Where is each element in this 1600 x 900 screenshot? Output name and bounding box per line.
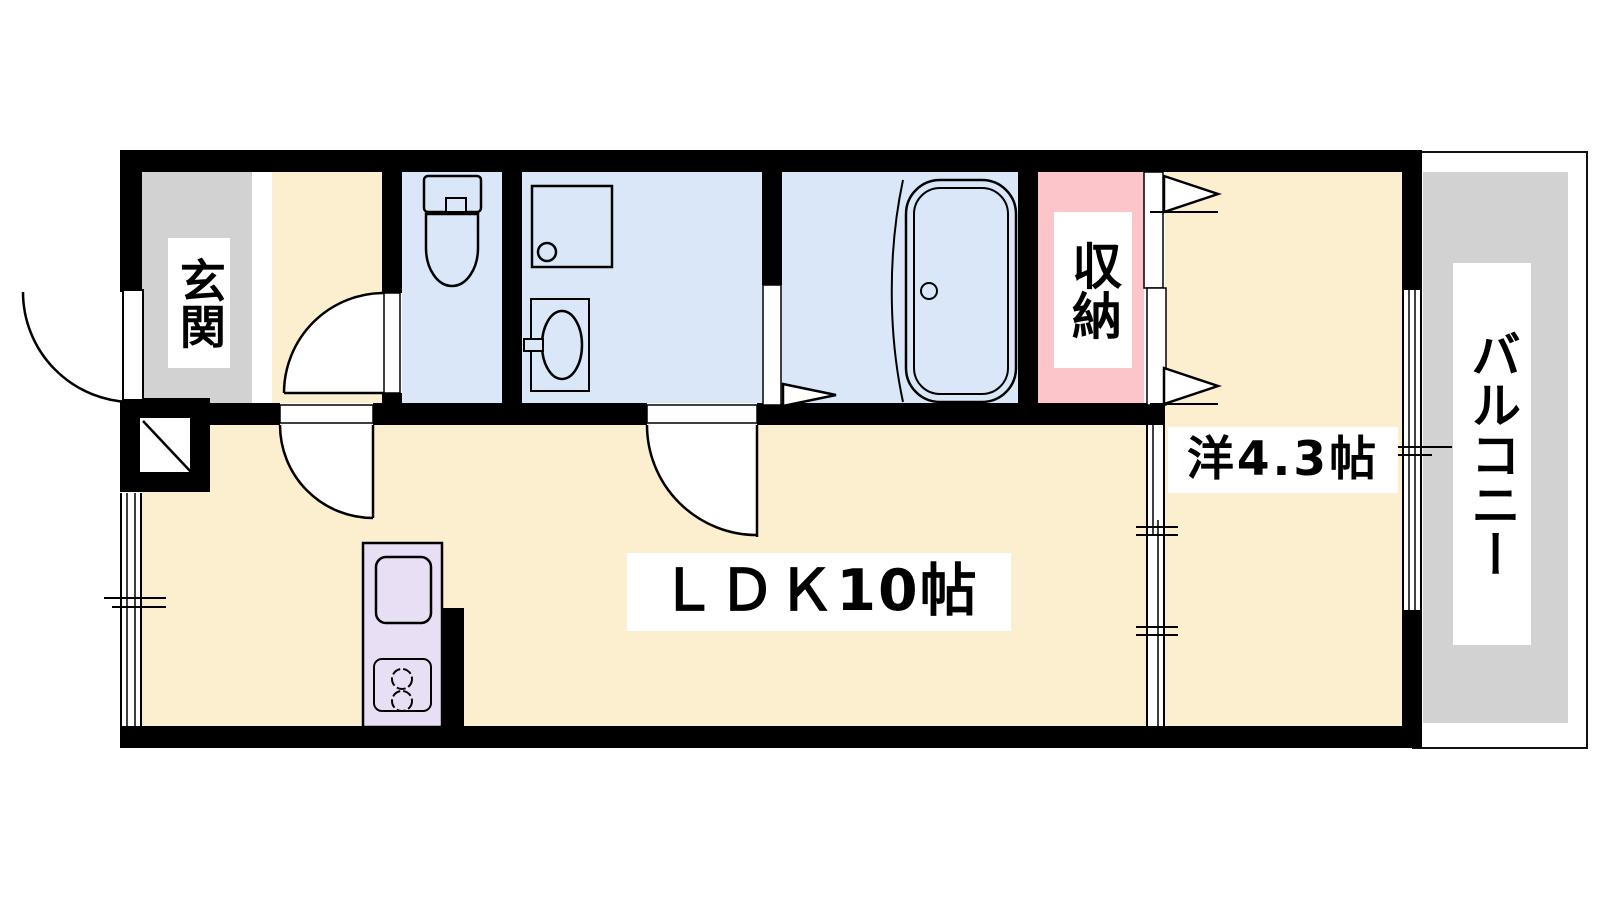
storage-label: 収納 — [1054, 212, 1132, 368]
ldk-label: ＬＤＫ10帖 — [627, 553, 1011, 631]
window-left — [104, 493, 166, 726]
closet-arrow-bottom-icon — [1164, 368, 1218, 404]
washbasin-icon — [524, 299, 589, 391]
closet-doors — [1144, 172, 1218, 405]
balcony-label: バルコニー — [1453, 263, 1531, 645]
kitchen-unit — [363, 543, 442, 727]
pipe-space-diagonal — [143, 421, 207, 489]
window-right — [1390, 290, 1452, 610]
western-room-label: 洋4.3帖 — [1168, 427, 1398, 493]
washroom-door — [647, 405, 757, 537]
bathtub-icon — [892, 180, 1016, 402]
entrance-door — [23, 290, 143, 402]
washing-machine-pan-icon — [532, 186, 612, 267]
floor-plan: 玄関 収納 バルコニー 洋4.3帖 ＬＤＫ10帖 — [0, 0, 1600, 900]
bathroom-door — [763, 285, 836, 406]
hall-ldk-door — [280, 405, 373, 518]
genkan-label: 玄関 — [168, 238, 230, 368]
toilet-icon — [424, 176, 481, 286]
bathroom-door-arrow-icon — [783, 384, 836, 406]
closet-arrow-top-icon — [1164, 176, 1218, 212]
toilet-door — [284, 293, 402, 393]
